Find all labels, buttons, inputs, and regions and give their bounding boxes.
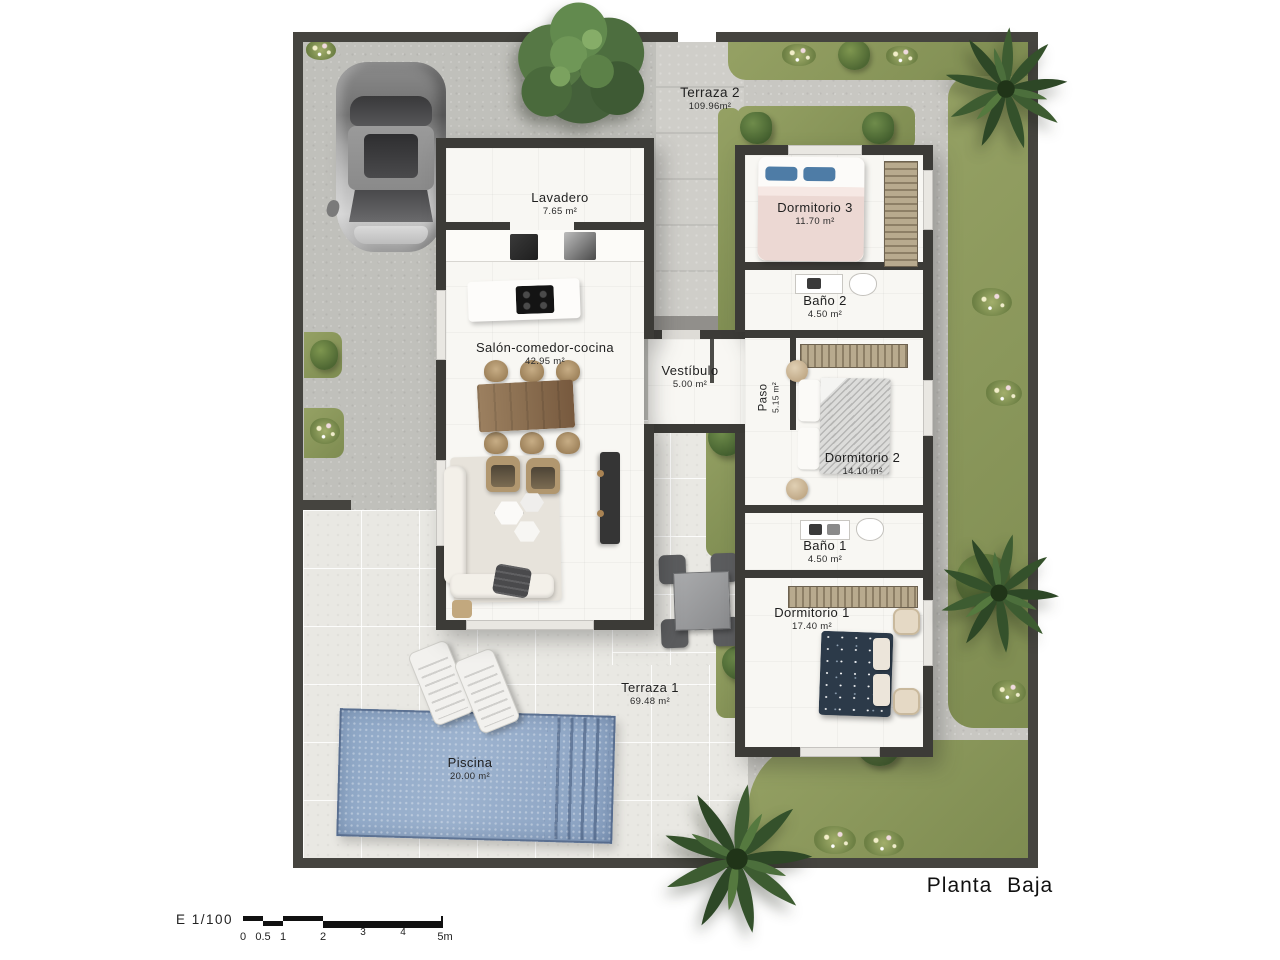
- room-name: Terraza 2: [640, 85, 780, 100]
- scale-tick-label: 1: [277, 931, 289, 943]
- scale-tick-label: 0: [237, 931, 249, 943]
- car-rear-window: [350, 96, 432, 126]
- bed-d3-pillow: [803, 167, 835, 181]
- room-area: 11.70 m²: [745, 216, 885, 227]
- dining-table: [477, 380, 575, 433]
- cooktop: [516, 285, 555, 314]
- armchair-cushion: [531, 467, 555, 489]
- bed-d3-fold: [758, 186, 864, 196]
- scale-ratio-label: E 1/100: [176, 912, 233, 927]
- car: [336, 62, 446, 252]
- room-area: 7.65 m²: [495, 206, 625, 217]
- label-terraza1: Terraza 1 69.48 m²: [580, 680, 720, 707]
- window-east-d2: [923, 380, 933, 436]
- tv-cabinet-knob: [597, 470, 604, 477]
- scale-tick-label: 0.5: [253, 931, 273, 943]
- wardrobe-dormitorio2: [800, 344, 908, 368]
- palm-tree-top-right: [933, 16, 1079, 162]
- scale-tick-label: 2: [317, 931, 329, 943]
- room-area: 109.96m²: [640, 101, 780, 112]
- tv-cabinet-knob: [597, 510, 604, 517]
- side-stool: [452, 600, 472, 618]
- armchair: [526, 458, 560, 494]
- label-dormitorio2: Dormitorio 2 14.10 m²: [790, 450, 935, 477]
- tree-top-center: [498, 0, 666, 152]
- room-name: Paso: [758, 361, 770, 435]
- kitchen-appliance: [564, 232, 596, 260]
- car-sunroof: [364, 134, 418, 178]
- wall-left: [293, 32, 303, 868]
- right-wing-wall-west-lower: [735, 433, 745, 757]
- bed-d1-pillow: [873, 674, 890, 706]
- label-vestibulo: Vestíbulo 5.00 m²: [630, 363, 750, 390]
- recliner-chair: [492, 563, 533, 599]
- bano1-sink-counter: [800, 520, 850, 540]
- armchair: [486, 456, 520, 492]
- window-south-d1: [800, 747, 880, 757]
- room-name: Salón-comedor-cocina: [450, 340, 640, 355]
- room-area: 5.15 m²: [771, 361, 781, 435]
- car-hood: [354, 226, 428, 244]
- label-bano1: Baño 1 4.50 m²: [765, 538, 885, 565]
- small-tree: [740, 112, 772, 144]
- scale-tick-label: 3: [357, 927, 369, 938]
- flower-bush: [864, 830, 904, 856]
- nightstand: [786, 478, 808, 500]
- pool-steps: [544, 717, 609, 841]
- flower-bush: [986, 380, 1022, 406]
- label-paso: Paso 5.15 m²: [758, 361, 781, 435]
- armchair-cushion: [491, 465, 515, 487]
- scale-end-tick: [441, 916, 443, 928]
- vestibulo-entry-door: [662, 330, 700, 339]
- tv-cabinet: [600, 452, 620, 544]
- car-windshield: [349, 190, 433, 222]
- outdoor-dining-set: [658, 549, 744, 654]
- dining-chair: [556, 432, 580, 454]
- wall-stub-left: [293, 500, 351, 510]
- nightstand-d1: [893, 608, 920, 635]
- flower-bush: [886, 46, 918, 66]
- label-dormitorio1: Dormitorio 1 17.40 m²: [742, 605, 882, 632]
- lavadero-divider-right: [574, 222, 644, 230]
- lavadero-divider-left: [446, 222, 510, 230]
- room-name: Lavadero: [495, 190, 625, 205]
- flower-bush: [306, 40, 336, 60]
- palm-tree-right: [928, 522, 1070, 664]
- window-west-1: [436, 290, 446, 360]
- room-area: 17.40 m²: [742, 621, 882, 632]
- divider-bano1-d1: [745, 570, 923, 578]
- bano2-sink-counter: [795, 274, 843, 294]
- right-wing-wall-west-upper: [735, 145, 745, 332]
- nightstand-d1: [893, 688, 920, 715]
- room-area: 20.00 m²: [400, 771, 540, 782]
- left-wing-wall-east-lower: [644, 424, 654, 630]
- round-bush: [310, 340, 338, 370]
- room-name: Vestíbulo: [630, 363, 750, 378]
- flower-bush: [992, 680, 1026, 704]
- dining-chair: [520, 432, 544, 454]
- bed-d3-pillow: [765, 167, 797, 181]
- bed-d1-pillow: [873, 638, 890, 670]
- bano2-sink: [807, 278, 821, 289]
- round-bush: [838, 40, 870, 70]
- room-area: 4.50 m²: [765, 554, 885, 565]
- label-terraza2: Terraza 2 109.96m²: [640, 85, 780, 112]
- left-wing-wall-east-upper: [644, 138, 654, 339]
- kitchen-island: [467, 278, 580, 322]
- room-area: 14.10 m²: [790, 466, 935, 477]
- window-south-glass: [466, 620, 594, 630]
- window-north-d3: [788, 145, 862, 155]
- label-dormitorio3: Dormitorio 3 11.70 m²: [745, 200, 885, 227]
- outdoor-table: [673, 571, 731, 631]
- scale-bar: 0 0.5 1 2 3 4 5m: [243, 916, 473, 948]
- scale-tick-label: 4: [397, 927, 409, 938]
- palm-tree-bottom: [648, 770, 826, 948]
- kitchen-sink-appliance: [510, 234, 538, 260]
- room-name: Terraza 1: [580, 680, 720, 695]
- flower-bush: [972, 288, 1012, 316]
- dining-chair: [484, 432, 508, 454]
- room-area: 42.95 m²: [450, 356, 640, 367]
- label-piscina: Piscina 20.00 m²: [400, 755, 540, 782]
- room-name: Dormitorio 3: [745, 200, 885, 215]
- room-name: Baño 2: [765, 293, 885, 308]
- sofa-vertical: [444, 466, 466, 584]
- flower-bush: [782, 44, 816, 66]
- bano1-sink: [809, 524, 822, 535]
- scale-segment: [283, 916, 323, 921]
- room-name: Dormitorio 1: [742, 605, 882, 620]
- room-name: Dormitorio 2: [790, 450, 935, 465]
- room-area: 4.50 m²: [765, 309, 885, 320]
- room-name: Piscina: [400, 755, 540, 770]
- window-east-d3: [923, 170, 933, 230]
- scale-segment: [263, 921, 283, 926]
- bed-d2-pillow: [798, 379, 821, 421]
- label-bano2: Baño 2 4.50 m²: [765, 293, 885, 320]
- plan-title: Planta Baja: [900, 874, 1080, 898]
- floor-plan-canvas: Terraza 2 109.96m² Lavadero 7.65 m² Saló…: [0, 0, 1280, 960]
- divider-bano2-paso: [745, 330, 923, 338]
- scale-segment: [323, 921, 443, 928]
- room-name: Baño 1: [765, 538, 885, 553]
- label-salon: Salón-comedor-cocina 42.95 m²: [450, 340, 640, 367]
- kitchen-counter: [446, 230, 644, 262]
- wardrobe-dormitorio3: [884, 161, 918, 267]
- vestibulo-wall-bottom: [648, 424, 748, 433]
- scale-tick-label: 5m: [433, 931, 457, 943]
- flower-bush: [310, 418, 340, 444]
- scale-segment: [243, 916, 263, 921]
- room-area: 69.48 m²: [580, 696, 720, 707]
- bano1-sink-2: [827, 524, 840, 535]
- small-tree: [862, 112, 894, 144]
- label-lavadero: Lavadero 7.65 m²: [495, 190, 625, 217]
- divider-d2-bano1: [745, 505, 923, 513]
- divider-paso-d2: [790, 338, 796, 430]
- room-area: 5.00 m²: [630, 379, 750, 390]
